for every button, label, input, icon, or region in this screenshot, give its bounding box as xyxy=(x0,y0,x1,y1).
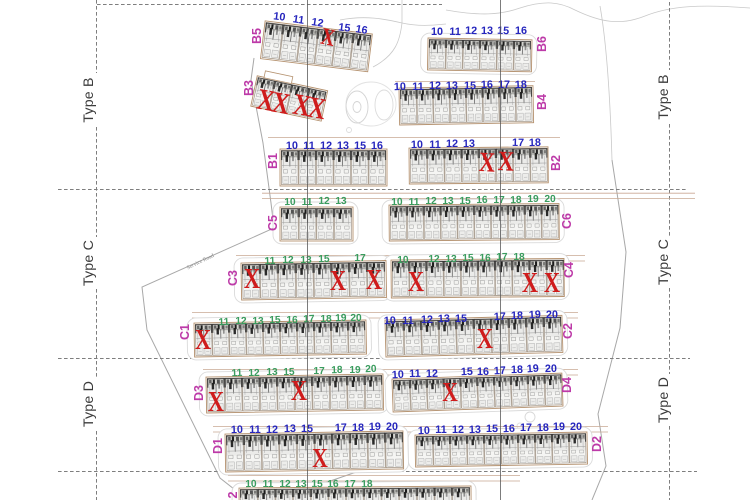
svg-text:15: 15 xyxy=(301,423,313,435)
svg-text:17: 17 xyxy=(498,79,510,91)
svg-text:16: 16 xyxy=(479,253,491,264)
svg-text:11: 11 xyxy=(409,197,420,208)
svg-text:17: 17 xyxy=(344,479,356,490)
svg-text:10: 10 xyxy=(284,197,296,208)
svg-text:X: X xyxy=(208,387,224,418)
svg-text:Type C: Type C xyxy=(656,239,672,285)
svg-text:D4: D4 xyxy=(560,377,574,393)
svg-text:12: 12 xyxy=(428,254,440,265)
svg-text:15: 15 xyxy=(455,313,467,325)
svg-text:13: 13 xyxy=(446,80,458,92)
svg-text:X: X xyxy=(291,376,307,407)
svg-text:17: 17 xyxy=(354,253,366,264)
svg-text:13: 13 xyxy=(284,423,296,435)
svg-text:18: 18 xyxy=(320,314,332,325)
svg-text:19: 19 xyxy=(369,421,382,434)
svg-text:2: 2 xyxy=(226,491,240,498)
svg-text:16: 16 xyxy=(286,315,298,326)
svg-text:X: X xyxy=(366,265,382,296)
svg-text:10: 10 xyxy=(431,26,443,38)
svg-text:13: 13 xyxy=(295,479,307,490)
svg-text:15: 15 xyxy=(464,80,476,92)
svg-text:20: 20 xyxy=(570,421,582,433)
svg-text:13: 13 xyxy=(469,424,481,436)
svg-text:C2: C2 xyxy=(561,323,575,339)
svg-text:20: 20 xyxy=(545,363,557,375)
svg-text:10: 10 xyxy=(384,315,397,328)
svg-text:19: 19 xyxy=(529,309,542,322)
svg-text:Type B: Type B xyxy=(656,74,672,119)
svg-text:18: 18 xyxy=(510,195,522,206)
svg-text:12: 12 xyxy=(421,314,433,326)
svg-text:13: 13 xyxy=(481,25,493,37)
svg-text:11: 11 xyxy=(409,368,421,380)
svg-text:18: 18 xyxy=(537,422,550,435)
svg-text:15: 15 xyxy=(462,253,474,264)
svg-text:15: 15 xyxy=(461,366,474,379)
svg-text:10: 10 xyxy=(418,425,430,437)
svg-text:C3: C3 xyxy=(226,270,240,286)
svg-text:12: 12 xyxy=(446,138,458,150)
svg-text:18: 18 xyxy=(361,479,373,490)
svg-text:X: X xyxy=(442,378,458,408)
svg-text:X: X xyxy=(312,444,328,474)
svg-text:13: 13 xyxy=(438,313,450,325)
svg-text:12: 12 xyxy=(320,140,332,152)
svg-text:12: 12 xyxy=(318,196,330,207)
svg-text:20: 20 xyxy=(365,364,377,375)
svg-text:17: 17 xyxy=(303,314,315,325)
svg-text:18: 18 xyxy=(511,364,523,376)
svg-text:X: X xyxy=(330,266,346,297)
svg-text:X: X xyxy=(544,268,560,299)
svg-text:19: 19 xyxy=(527,194,539,205)
svg-text:12: 12 xyxy=(235,316,247,327)
svg-text:13: 13 xyxy=(300,255,312,266)
svg-text:B5: B5 xyxy=(250,28,264,44)
svg-text:17: 17 xyxy=(496,252,508,263)
svg-text:C1: C1 xyxy=(178,324,192,340)
svg-text:18: 18 xyxy=(331,365,343,376)
svg-text:15: 15 xyxy=(338,21,351,34)
svg-text:X: X xyxy=(522,268,538,299)
svg-text:11: 11 xyxy=(231,368,242,379)
svg-text:18: 18 xyxy=(529,137,541,149)
svg-text:X: X xyxy=(497,146,515,178)
svg-text:11: 11 xyxy=(249,424,261,436)
svg-text:X: X xyxy=(408,267,424,298)
svg-text:11: 11 xyxy=(292,13,305,27)
svg-text:18: 18 xyxy=(513,252,525,263)
svg-text:11: 11 xyxy=(218,317,229,328)
svg-text:15: 15 xyxy=(269,315,281,326)
svg-text:16: 16 xyxy=(515,25,527,37)
svg-text:12: 12 xyxy=(279,479,291,490)
svg-text:10: 10 xyxy=(245,479,257,490)
svg-text:19: 19 xyxy=(349,365,361,376)
svg-text:12: 12 xyxy=(266,424,278,436)
svg-text:12: 12 xyxy=(429,80,441,92)
svg-text:Type D: Type D xyxy=(656,377,672,423)
svg-text:11: 11 xyxy=(449,26,461,38)
svg-text:20: 20 xyxy=(546,309,558,321)
svg-text:16: 16 xyxy=(355,23,369,37)
svg-text:20: 20 xyxy=(386,421,398,433)
svg-text:11: 11 xyxy=(412,81,424,93)
svg-text:20: 20 xyxy=(544,194,556,205)
svg-text:10: 10 xyxy=(231,424,243,436)
svg-text:B4: B4 xyxy=(535,94,549,110)
svg-text:16: 16 xyxy=(371,140,383,152)
svg-text:17: 17 xyxy=(494,311,507,324)
svg-text:15: 15 xyxy=(354,140,366,152)
svg-text:11: 11 xyxy=(263,479,274,490)
svg-text:13: 13 xyxy=(445,254,457,265)
svg-text:19: 19 xyxy=(553,421,565,433)
svg-text:13: 13 xyxy=(266,367,278,378)
svg-text:12: 12 xyxy=(426,368,438,380)
svg-text:19: 19 xyxy=(526,363,539,376)
svg-text:20: 20 xyxy=(350,313,362,324)
svg-text:11: 11 xyxy=(429,139,440,151)
svg-text:B6: B6 xyxy=(535,36,549,52)
svg-text:10: 10 xyxy=(391,197,403,208)
svg-text:10: 10 xyxy=(397,255,409,266)
svg-text:X: X xyxy=(244,264,260,295)
svg-text:11: 11 xyxy=(264,256,275,267)
svg-text:16: 16 xyxy=(481,79,493,91)
svg-text:D3: D3 xyxy=(192,385,206,401)
svg-text:11: 11 xyxy=(435,424,447,436)
svg-text:C5: C5 xyxy=(266,215,280,231)
svg-text:B1: B1 xyxy=(266,153,280,169)
svg-text:15: 15 xyxy=(497,25,510,38)
svg-text:D1: D1 xyxy=(211,438,225,454)
svg-text:12: 12 xyxy=(425,196,437,207)
svg-text:15: 15 xyxy=(486,423,498,435)
svg-text:15: 15 xyxy=(311,479,323,490)
svg-text:18: 18 xyxy=(352,422,364,434)
svg-text:X: X xyxy=(477,324,493,355)
svg-text:13: 13 xyxy=(442,196,454,207)
svg-text:10: 10 xyxy=(394,81,406,93)
svg-text:D2: D2 xyxy=(590,436,604,452)
svg-text:16: 16 xyxy=(503,423,515,435)
svg-text:16: 16 xyxy=(476,195,488,206)
svg-text:17: 17 xyxy=(335,422,347,434)
svg-text:X: X xyxy=(195,325,211,356)
svg-text:18: 18 xyxy=(515,79,528,92)
svg-text:C6: C6 xyxy=(560,213,574,229)
svg-text:12: 12 xyxy=(248,368,260,379)
svg-text:10: 10 xyxy=(286,140,298,152)
svg-text:17: 17 xyxy=(494,365,507,378)
svg-text:16: 16 xyxy=(327,479,339,490)
svg-text:17: 17 xyxy=(493,195,505,206)
svg-text:12: 12 xyxy=(465,25,477,37)
svg-text:15: 15 xyxy=(459,196,471,207)
svg-text:10: 10 xyxy=(411,139,423,151)
svg-text:13: 13 xyxy=(337,140,349,152)
svg-text:Type C: Type C xyxy=(81,240,97,286)
svg-text:13: 13 xyxy=(252,316,264,327)
svg-text:12: 12 xyxy=(452,424,464,436)
svg-text:X: X xyxy=(478,147,496,179)
svg-text:11: 11 xyxy=(402,315,414,327)
svg-text:10: 10 xyxy=(273,10,286,23)
svg-text:13: 13 xyxy=(335,196,347,207)
svg-text:Type B: Type B xyxy=(81,77,97,122)
svg-text:17: 17 xyxy=(520,422,532,434)
svg-text:18: 18 xyxy=(511,310,523,322)
svg-text:13: 13 xyxy=(463,138,475,150)
svg-text:C4: C4 xyxy=(562,262,576,278)
svg-text:B2: B2 xyxy=(549,155,563,171)
svg-text:19: 19 xyxy=(335,313,347,324)
svg-text:17: 17 xyxy=(313,366,325,377)
svg-text:10: 10 xyxy=(392,369,405,382)
svg-text:15: 15 xyxy=(318,254,330,265)
svg-text:11: 11 xyxy=(303,140,315,152)
svg-text:Type D: Type D xyxy=(81,381,97,427)
svg-text:16: 16 xyxy=(477,366,489,378)
svg-text:12: 12 xyxy=(282,255,294,266)
svg-text:B3: B3 xyxy=(242,80,256,96)
